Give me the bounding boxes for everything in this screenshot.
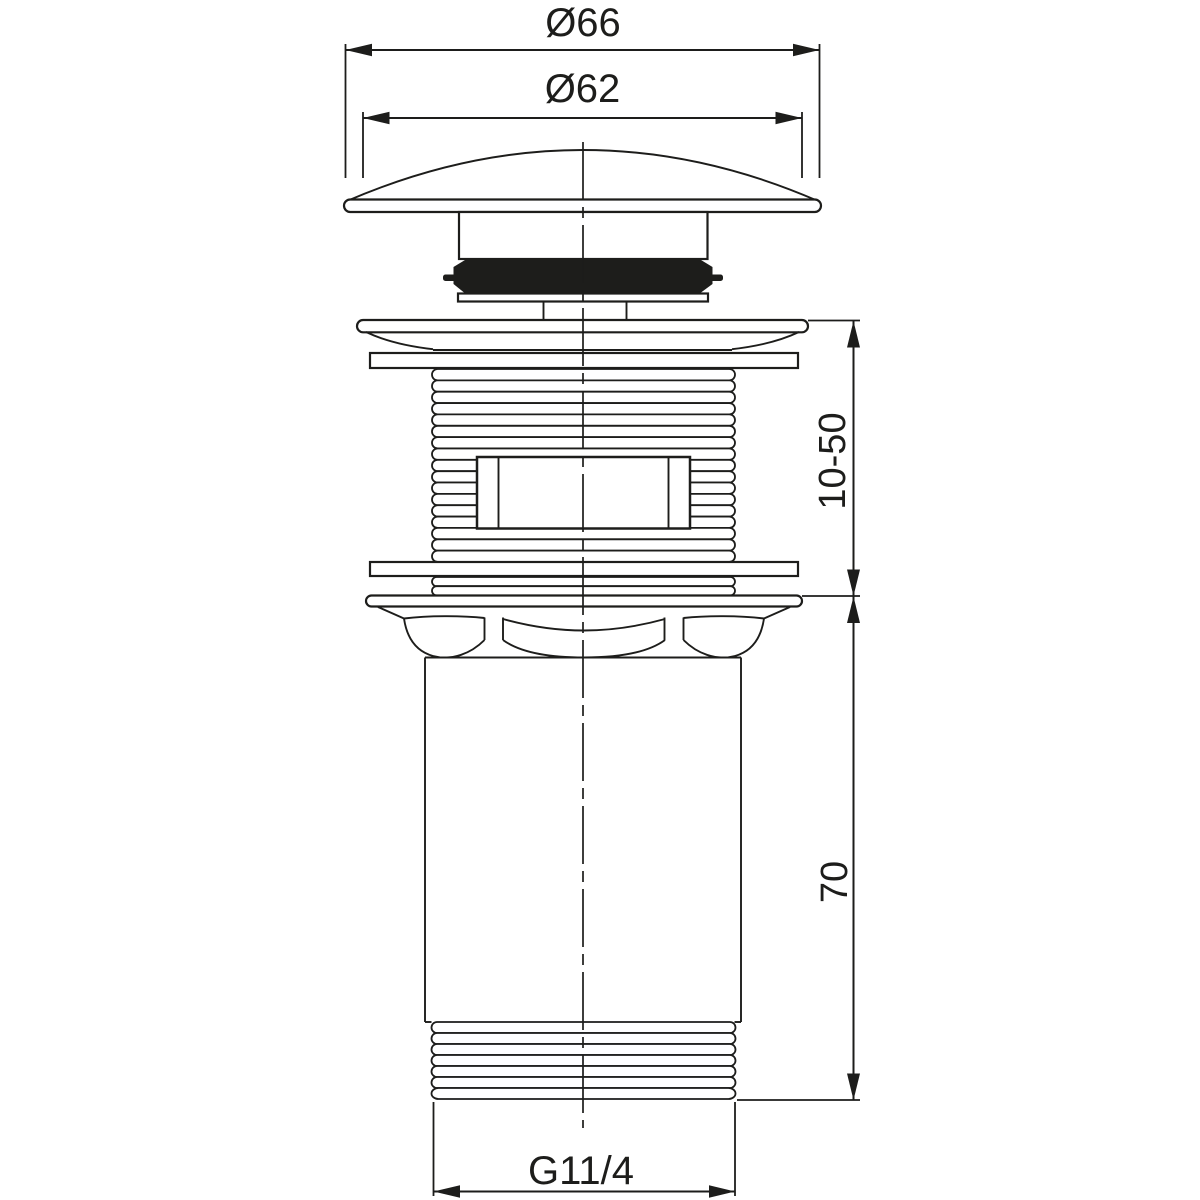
upper-washer [370,353,798,368]
dimension-thread-size: G11/4 [434,1102,736,1198]
label-cap-top-diameter: Ø62 [545,67,621,111]
label-thread-size: G11/4 [528,1149,634,1193]
lower-washer [370,562,798,576]
label-clamping-range: 10-50 [812,412,854,509]
connecting-stem [544,301,627,321]
label-tailpiece-length: 70 [814,861,856,903]
technical-drawing-page: Ø66 Ø62 10-50 70 G11/4 [0,0,1200,1200]
bottom-flange [366,596,802,607]
dimension-tailpiece-length: 70 [737,597,860,1101]
dimension-clamping-range: 10-50 [802,321,860,597]
basin-waste-valve-drawing: Ø66 Ø62 10-50 70 G11/4 [0,0,1200,1200]
wing-nut [378,607,790,658]
label-cap-outer-diameter: Ø66 [545,1,621,45]
